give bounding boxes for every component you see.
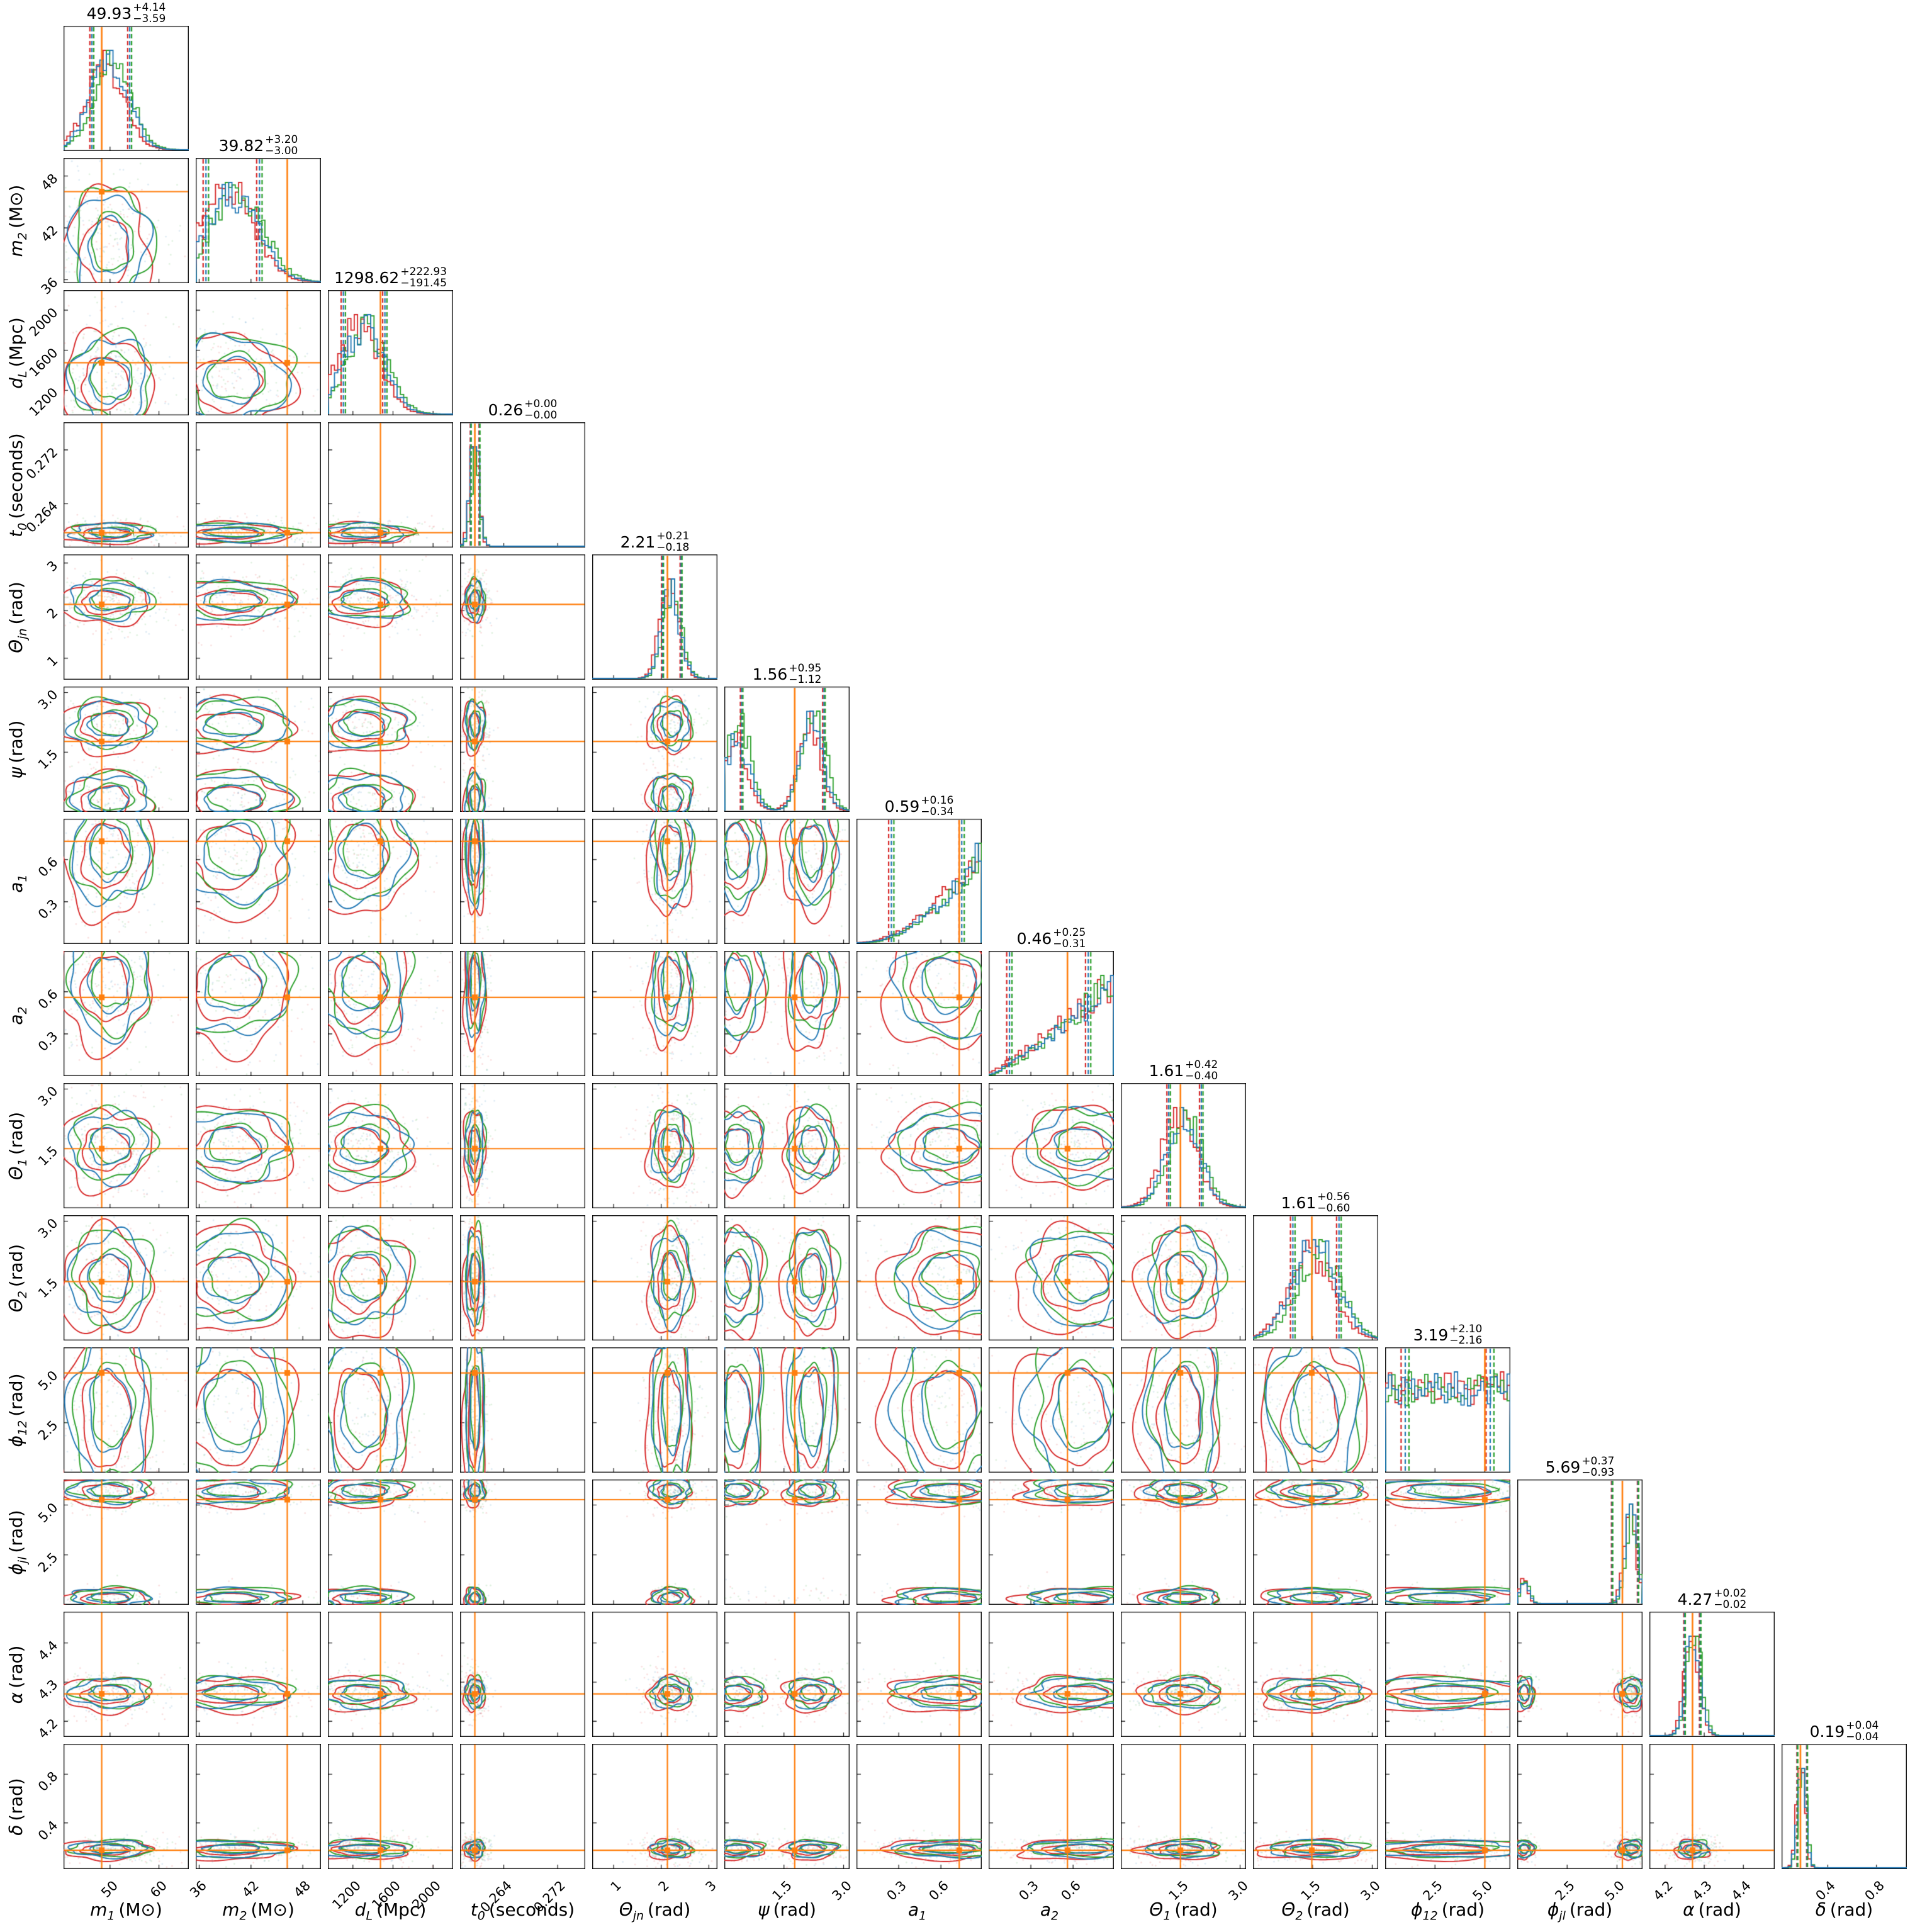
- panel-psi-vs-theta1: [724, 1083, 850, 1208]
- panel-canvas: [64, 158, 189, 283]
- panel-psi-vs-delta: [724, 1744, 850, 1869]
- panel-m2-vs-a1: [196, 819, 321, 944]
- panel-canvas: [856, 1347, 982, 1473]
- axis-unit: (rad): [773, 1899, 816, 1920]
- title-plus: +0.04: [1846, 1720, 1879, 1731]
- title-phijl: 5.69+0.37−0.93: [1546, 1456, 1615, 1479]
- panel-t0-vs-phijl: [460, 1480, 585, 1605]
- x-axis-label-theta2: Θ2(rad): [1281, 1899, 1349, 1923]
- panel-a2-vs-theta2: [989, 1215, 1114, 1340]
- panel-t0-vs-psi: [460, 687, 585, 812]
- y-tick-label: 1: [44, 653, 60, 669]
- panel-phi12-vs-phijl: [1385, 1480, 1510, 1605]
- panel-canvas: [592, 687, 717, 812]
- panel-canvas: [460, 1480, 585, 1605]
- panel-a2-vs-alpha: [989, 1612, 1114, 1737]
- axis-var: m: [90, 1899, 107, 1920]
- corner-plot-figure: 49.93+4.14−3.5939.82+3.20−3.001298.62+22…: [0, 0, 1932, 1932]
- panel-canvas: [64, 1480, 189, 1605]
- panel-a1-vs-theta1: [856, 1083, 982, 1208]
- panel-a1-vs-phi12: [856, 1347, 982, 1473]
- panel-m1-vs-alpha: [64, 1612, 189, 1737]
- panel-canvas: [592, 819, 717, 944]
- panel-psi-vs-phi12: [724, 1347, 850, 1473]
- axis-sub: 12: [16, 1420, 30, 1435]
- panel-canvas: [328, 687, 453, 812]
- axis-var: ϕ: [1411, 1899, 1422, 1920]
- panel-canvas: [460, 687, 585, 812]
- panel-canvas: [64, 26, 189, 151]
- y-tick-label: 2000: [26, 305, 61, 339]
- title-minus: −0.04: [1846, 1731, 1879, 1743]
- title-minus: −0.40: [1185, 1070, 1218, 1082]
- title-minus: −0.02: [1714, 1599, 1746, 1610]
- panel-psi-vs-phijl: [724, 1480, 850, 1605]
- y-tick-label: 42: [38, 223, 61, 245]
- panel-canvas: [856, 951, 982, 1076]
- axis-sub: 0: [16, 522, 30, 530]
- title-minus: −0.34: [921, 806, 953, 817]
- panel-phi12-vs-delta: [1385, 1744, 1510, 1869]
- axis-var: Θ: [1149, 1899, 1163, 1920]
- axis-unit: (M⊙): [6, 184, 26, 228]
- panel-canvas: [724, 1480, 850, 1605]
- panel-canvas: [989, 1612, 1114, 1737]
- x-axis-label-phi12: ϕ12(rad): [1411, 1899, 1485, 1923]
- title-plus: +0.42: [1185, 1059, 1218, 1070]
- panel-canvas: [460, 951, 585, 1076]
- panel-canvas: [64, 1744, 189, 1869]
- panel-thetajn-vs-a2: [592, 951, 717, 1076]
- title-median: 1.56: [753, 666, 788, 682]
- panel-alpha-vs-delta: [1649, 1744, 1775, 1869]
- panel-canvas: [724, 1083, 850, 1208]
- title-psi: 1.56+0.95−1.12: [753, 663, 822, 686]
- x-axis-label-a1: a1: [908, 1899, 930, 1923]
- panel-canvas: [1385, 1480, 1510, 1605]
- axis-sub: L: [16, 371, 30, 378]
- axis-unit: (rad): [6, 581, 26, 624]
- panel-canvas: [989, 1480, 1114, 1605]
- panel-canvas: [64, 819, 189, 944]
- panel-thetajn-vs-a1: [592, 819, 717, 944]
- panel-phijl-vs-delta: [1517, 1744, 1643, 1869]
- panel-canvas: [460, 1612, 585, 1737]
- axis-sub: jn: [633, 1909, 644, 1923]
- panel-canvas: [724, 1744, 850, 1869]
- panel-canvas: [856, 1744, 982, 1869]
- panel-canvas: [1253, 1480, 1378, 1605]
- axis-sub: 1: [16, 1159, 30, 1166]
- axis-var: a: [1040, 1899, 1051, 1920]
- axis-var: Θ: [6, 1298, 26, 1312]
- axis-var: ψ: [758, 1899, 769, 1920]
- y-tick-label: 4.3: [35, 1676, 61, 1702]
- axis-unit: (seconds): [6, 433, 26, 519]
- panel-canvas: [196, 1215, 321, 1340]
- panel-canvas: [592, 951, 717, 1076]
- axis-var: α: [6, 1692, 26, 1703]
- panel-m2-vs-alpha: [196, 1612, 321, 1737]
- title-median: 5.69: [1546, 1459, 1581, 1475]
- axis-sub: 2: [16, 232, 30, 240]
- panel-canvas: [196, 1612, 321, 1737]
- panel-canvas: [856, 1083, 982, 1208]
- panel-canvas: [196, 1744, 321, 1869]
- panel-canvas: [64, 1347, 189, 1473]
- axis-var: t: [6, 530, 26, 537]
- panel-a1-vs-theta2: [856, 1215, 982, 1340]
- x-tick-label: 48: [291, 1878, 313, 1901]
- title-plus: +0.37: [1581, 1456, 1614, 1467]
- y-tick-label: 3.0: [35, 1216, 61, 1242]
- panel-canvas: [1121, 1083, 1246, 1208]
- title-median: 3.19: [1413, 1327, 1449, 1343]
- panel-canvas: [1121, 1480, 1246, 1605]
- axis-var: m: [222, 1899, 239, 1920]
- title-theta2: 1.61+0.56−0.60: [1281, 1191, 1351, 1215]
- axis-sub: 2: [1295, 1909, 1303, 1923]
- title-median: 0.59: [885, 799, 920, 814]
- panel-hist-thetajn: [592, 554, 717, 680]
- axis-var: ϕ: [6, 1563, 26, 1575]
- axis-var: ψ: [6, 767, 26, 778]
- panel-canvas: [460, 819, 585, 944]
- title-t0: 0.26+0.00−0.00: [488, 398, 558, 422]
- axis-unit: (M⊙): [118, 1899, 162, 1920]
- title-minus: −191.45: [400, 278, 447, 289]
- panel-psi-vs-a1: [724, 819, 850, 944]
- panel-canvas: [592, 1612, 717, 1737]
- title-a2: 0.46+0.25−0.31: [1017, 927, 1086, 950]
- panel-dL-vs-a2: [328, 951, 453, 1076]
- panel-psi-vs-alpha: [724, 1612, 850, 1737]
- panel-canvas: [724, 1347, 850, 1473]
- title-median: 1.61: [1149, 1063, 1184, 1079]
- axis-sub: 2: [16, 1006, 30, 1014]
- x-tick-label: 3: [703, 1878, 719, 1894]
- title-median: 4.27: [1678, 1592, 1713, 1607]
- axis-sub: 0: [478, 1909, 485, 1923]
- x-tick-label: 42: [239, 1878, 262, 1901]
- axis-unit: (seconds): [489, 1899, 575, 1920]
- panel-canvas: [1649, 1744, 1775, 1869]
- panel-canvas: [196, 819, 321, 944]
- panel-canvas: [856, 1480, 982, 1605]
- axis-var: Θ: [619, 1899, 633, 1920]
- y-axis-label-a1: a1: [6, 870, 30, 892]
- panel-t0-vs-thetajn: [460, 554, 585, 680]
- axis-unit: (rad): [1174, 1899, 1217, 1920]
- title-errors: +222.93−191.45: [400, 266, 447, 289]
- panel-canvas: [64, 554, 189, 680]
- x-axis-label-psi: ψ(rad): [758, 1899, 816, 1923]
- x-tick-label: 60: [147, 1878, 170, 1901]
- panel-canvas: [328, 554, 453, 680]
- y-axis-label-t0: t0(seconds): [6, 433, 30, 537]
- title-minus: −0.31: [1053, 938, 1086, 950]
- axis-var: δ: [6, 1824, 26, 1835]
- panel-dL-vs-theta1: [328, 1083, 453, 1208]
- axis-sub: 1: [107, 1909, 115, 1923]
- axis-sub: 2: [239, 1909, 247, 1923]
- axis-unit: (Mpc): [376, 1899, 426, 1920]
- panel-a1-vs-delta: [856, 1744, 982, 1869]
- panel-canvas: [592, 554, 717, 680]
- y-axis-label-dL: dL(Mpc): [6, 317, 30, 389]
- y-axis-label-m2: m2(M⊙): [6, 184, 30, 257]
- panel-canvas: [328, 1347, 453, 1473]
- panel-canvas: [328, 819, 453, 944]
- title-errors: +0.04−0.04: [1846, 1720, 1879, 1743]
- y-tick-label: 4.2: [35, 1716, 61, 1742]
- axis-unit: (rad): [1830, 1899, 1873, 1920]
- panel-psi-vs-a2: [724, 951, 850, 1076]
- panel-canvas: [196, 158, 321, 283]
- y-tick-label: 2.5: [35, 1417, 61, 1443]
- title-plus: +0.25: [1053, 927, 1086, 938]
- axis-sub: jl: [16, 1556, 30, 1563]
- title-minus: −0.60: [1317, 1203, 1350, 1214]
- panel-t0-vs-theta1: [460, 1083, 585, 1208]
- panel-canvas: [1121, 1215, 1246, 1340]
- axis-unit: (rad): [6, 720, 26, 763]
- axis-unit: (rad): [6, 1244, 26, 1286]
- y-tick-label: 1.5: [35, 1276, 61, 1301]
- panel-dL-vs-alpha: [328, 1612, 453, 1737]
- panel-a2-vs-phijl: [989, 1480, 1114, 1605]
- panel-hist-m2: [196, 158, 321, 283]
- title-errors: +4.14−3.59: [133, 2, 166, 25]
- axis-unit: (rad): [6, 1645, 26, 1688]
- axis-unit: (rad): [648, 1899, 690, 1920]
- axis-var: Θ: [1281, 1899, 1295, 1920]
- panel-m2-vs-t0: [196, 422, 321, 548]
- panel-canvas: [724, 687, 850, 812]
- axis-var: a: [6, 882, 26, 892]
- axis-unit: (rad): [6, 1510, 26, 1553]
- x-tick-label: 50: [98, 1878, 121, 1901]
- y-axis-label-alpha: α(rad): [6, 1645, 30, 1704]
- panel-a1-vs-a2: [856, 951, 982, 1076]
- x-axis-label-m2: m2(M⊙): [222, 1899, 295, 1923]
- title-median: 1.61: [1281, 1195, 1317, 1211]
- panel-dL-vs-t0: [328, 422, 453, 548]
- x-tick-label: 3.0: [1225, 1878, 1251, 1904]
- panel-canvas: [328, 951, 453, 1076]
- panel-canvas: [1782, 1744, 1907, 1869]
- title-errors: +0.42−0.40: [1185, 1059, 1218, 1082]
- y-tick-label: 0.8: [35, 1769, 61, 1795]
- axis-sub: 12: [1422, 1909, 1437, 1923]
- panel-canvas: [989, 951, 1114, 1076]
- title-plus: +0.00: [524, 398, 557, 410]
- x-axis-label-m1: m1(M⊙): [90, 1899, 162, 1923]
- panel-canvas: [196, 422, 321, 548]
- panel-hist-a1: [856, 819, 982, 944]
- panel-dL-vs-phi12: [328, 1347, 453, 1473]
- panel-thetajn-vs-psi: [592, 687, 717, 812]
- title-m1: 49.93+4.14−3.59: [87, 2, 166, 25]
- title-median: 0.26: [488, 402, 524, 418]
- panel-canvas: [328, 422, 453, 548]
- title-plus: +3.20: [265, 134, 298, 145]
- y-tick-label: 1200: [26, 385, 61, 420]
- panel-hist-psi: [724, 687, 850, 812]
- title-plus: +4.14: [133, 2, 166, 13]
- panel-theta1-vs-delta: [1121, 1744, 1246, 1869]
- title-median: 1298.62: [334, 270, 399, 286]
- title-errors: +0.02−0.02: [1714, 1588, 1746, 1611]
- axis-var: ϕ: [1547, 1899, 1559, 1920]
- panel-m1-vs-psi: [64, 687, 189, 812]
- title-errors: +3.20−3.00: [265, 134, 298, 157]
- panel-thetajn-vs-theta2: [592, 1215, 717, 1340]
- panel-canvas: [1253, 1215, 1378, 1340]
- panel-canvas: [64, 687, 189, 812]
- panel-hist-phi12: [1385, 1347, 1510, 1473]
- panel-canvas: [64, 1215, 189, 1340]
- panel-canvas: [196, 951, 321, 1076]
- title-m2: 39.82+3.20−3.00: [219, 134, 298, 157]
- axis-unit: (rad): [1570, 1899, 1612, 1920]
- y-tick-label: 3.0: [35, 687, 61, 713]
- panel-canvas: [328, 1480, 453, 1605]
- axis-unit: (rad): [6, 1373, 26, 1416]
- title-theta1: 1.61+0.42−0.40: [1149, 1059, 1218, 1082]
- panel-canvas: [724, 1215, 850, 1340]
- title-dL: 1298.62+222.93−191.45: [334, 266, 447, 289]
- axis-sub: L: [366, 1909, 373, 1923]
- title-minus: −0.18: [656, 542, 689, 553]
- title-plus: +2.10: [1449, 1323, 1482, 1335]
- panel-canvas: [1517, 1612, 1643, 1737]
- panel-canvas: [328, 290, 453, 415]
- title-plus: +0.95: [789, 663, 821, 674]
- panel-canvas: [592, 1744, 717, 1869]
- y-tick-label: 4.4: [35, 1637, 61, 1663]
- y-tick-label: 5.0: [35, 1500, 61, 1525]
- axis-sub: jn: [16, 628, 30, 639]
- panel-dL-vs-delta: [328, 1744, 453, 1869]
- panel-canvas: [64, 422, 189, 548]
- panel-m1-vs-phijl: [64, 1480, 189, 1605]
- axis-var: m: [6, 240, 26, 257]
- panel-hist-theta1: [1121, 1083, 1246, 1208]
- title-delta: 0.19+0.04−0.04: [1810, 1720, 1879, 1743]
- panel-a1-vs-phijl: [856, 1480, 982, 1605]
- y-tick-label: 0.3: [35, 1028, 61, 1054]
- panel-theta2-vs-phijl: [1253, 1480, 1378, 1605]
- axis-var: d: [355, 1899, 366, 1920]
- title-minus: −1.12: [789, 674, 821, 685]
- x-axis-label-alpha: α(rad): [1683, 1899, 1741, 1923]
- panel-m2-vs-phijl: [196, 1480, 321, 1605]
- title-median: 0.46: [1017, 931, 1052, 946]
- panel-a2-vs-theta1: [989, 1083, 1114, 1208]
- axis-unit: (rad): [6, 1111, 26, 1154]
- y-tick-label: 5.0: [35, 1368, 61, 1393]
- title-errors: +0.37−0.93: [1581, 1456, 1614, 1479]
- panel-canvas: [989, 1744, 1114, 1869]
- panel-m1-vs-theta1: [64, 1083, 189, 1208]
- panel-m2-vs-delta: [196, 1744, 321, 1869]
- panel-hist-dL: [328, 290, 453, 415]
- title-alpha: 4.27+0.02−0.02: [1678, 1588, 1747, 1611]
- panel-theta2-vs-alpha: [1253, 1612, 1378, 1737]
- axis-unit: (rad): [6, 1778, 26, 1821]
- panel-canvas: [1649, 1612, 1775, 1737]
- title-errors: +2.10−2.16: [1449, 1323, 1482, 1347]
- panel-canvas: [460, 1347, 585, 1473]
- panel-m1-vs-phi12: [64, 1347, 189, 1473]
- title-errors: +0.00−0.00: [524, 398, 557, 422]
- axis-var: ϕ: [6, 1435, 26, 1447]
- panel-canvas: [64, 1612, 189, 1737]
- title-phi12: 3.19+2.10−2.16: [1413, 1323, 1483, 1347]
- y-axis-label-thetajn: Θjn(rad): [6, 581, 30, 653]
- panel-canvas: [460, 554, 585, 680]
- panel-hist-delta: [1782, 1744, 1907, 1869]
- axis-unit: (rad): [1699, 1899, 1741, 1920]
- y-tick-label: 0.4: [35, 1817, 61, 1843]
- title-errors: +0.95−1.12: [789, 663, 821, 686]
- panel-canvas: [724, 951, 850, 1076]
- title-plus: +0.21: [656, 531, 689, 542]
- panel-canvas: [1385, 1347, 1510, 1473]
- panel-t0-vs-alpha: [460, 1612, 585, 1737]
- axis-var: t: [471, 1899, 478, 1920]
- panel-a2-vs-delta: [989, 1744, 1114, 1869]
- x-tick-label: 0.3: [884, 1878, 909, 1904]
- panel-hist-theta2: [1253, 1215, 1378, 1340]
- panel-canvas: [592, 1215, 717, 1340]
- panel-canvas: [989, 1083, 1114, 1208]
- title-errors: +0.25−0.31: [1053, 927, 1086, 950]
- panel-m2-vs-theta2: [196, 1215, 321, 1340]
- x-tick-label: 1: [608, 1878, 624, 1894]
- panel-thetajn-vs-delta: [592, 1744, 717, 1869]
- panel-hist-alpha: [1649, 1612, 1775, 1737]
- panel-canvas: [592, 1347, 717, 1473]
- x-tick-label: 2: [655, 1878, 671, 1894]
- panel-canvas: [196, 687, 321, 812]
- panel-canvas: [1253, 1744, 1378, 1869]
- x-tick-label: 3.0: [829, 1878, 855, 1904]
- title-errors: +0.21−0.18: [656, 531, 689, 554]
- panel-hist-t0: [460, 422, 585, 548]
- x-axis-label-thetajn: Θjn(rad): [619, 1899, 691, 1923]
- x-axis-label-dL: dL(Mpc): [355, 1899, 427, 1923]
- panel-m1-vs-a2: [64, 951, 189, 1076]
- panel-phijl-vs-alpha: [1517, 1612, 1643, 1737]
- panel-canvas: [1121, 1744, 1246, 1869]
- panel-m2-vs-thetajn: [196, 554, 321, 680]
- panel-canvas: [989, 1347, 1114, 1473]
- panel-m1-vs-thetajn: [64, 554, 189, 680]
- x-axis-label-t0: t0(seconds): [471, 1899, 575, 1923]
- panel-a2-vs-phi12: [989, 1347, 1114, 1473]
- panel-canvas: [328, 1083, 453, 1208]
- panel-m2-vs-dL: [196, 290, 321, 415]
- panel-m1-vs-a1: [64, 819, 189, 944]
- y-axis-label-delta: δ(rad): [6, 1778, 30, 1835]
- axis-var: a: [908, 1899, 919, 1920]
- panel-canvas: [328, 1215, 453, 1340]
- y-tick-label: 1.5: [35, 1143, 61, 1169]
- title-thetajn: 2.21+0.21−0.18: [621, 531, 690, 554]
- title-errors: +0.56−0.60: [1317, 1191, 1350, 1215]
